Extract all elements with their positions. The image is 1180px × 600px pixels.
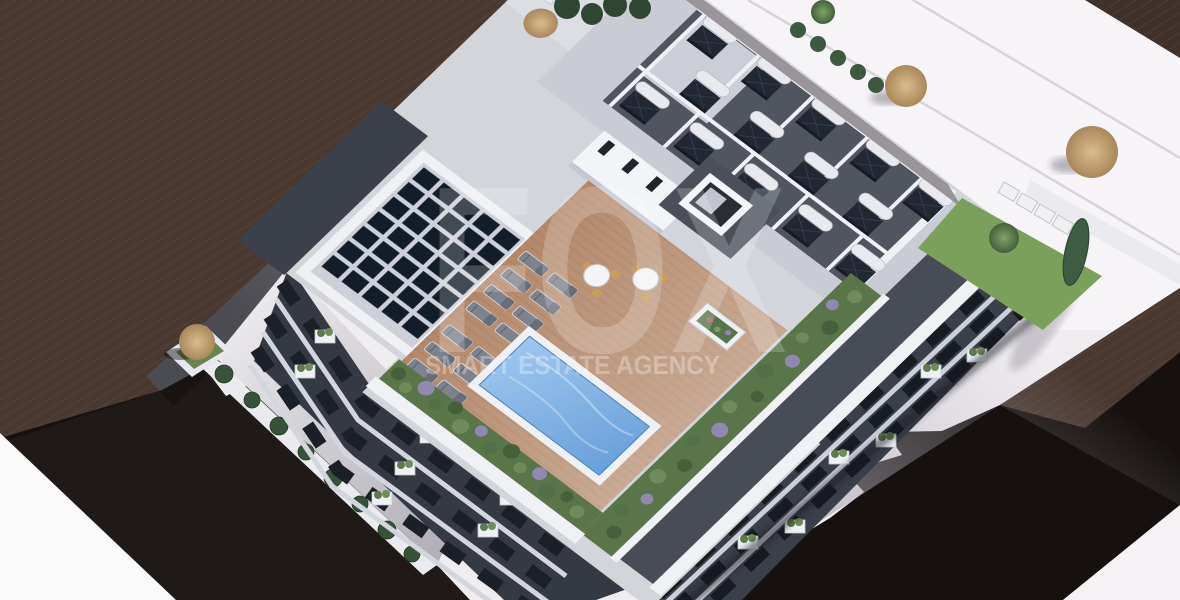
autumn-tree: [1066, 126, 1118, 178]
autumn-tree: [179, 324, 215, 360]
autumn-tree: [885, 65, 927, 107]
architectural-render: FOX SMART ESTATE AGENCY: [0, 0, 1180, 600]
green-tree: [811, 0, 835, 24]
watermark-tagline: SMART ESTATE AGENCY: [425, 350, 720, 380]
watermark: FOX SMART ESTATE AGENCY: [425, 138, 788, 403]
green-tree: [989, 223, 1019, 253]
